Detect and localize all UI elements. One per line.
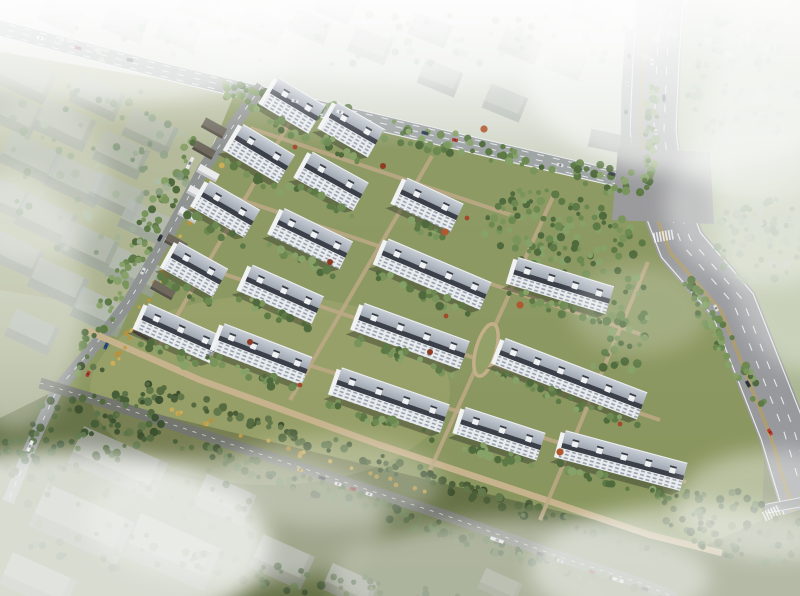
red-accent-tree: [444, 314, 449, 319]
red-accent-tree: [327, 259, 333, 265]
red-accent-tree: [441, 228, 448, 235]
red-accent-tree: [427, 349, 433, 355]
aerial-render-canvas: [0, 0, 800, 596]
red-accent-tree: [618, 422, 623, 427]
red-accent-tree: [516, 301, 523, 308]
red-accent-tree: [465, 216, 470, 221]
aerial-render-stage: [0, 0, 800, 596]
fog-patch: [570, 265, 710, 355]
red-accent-tree: [247, 339, 253, 345]
red-accent-tree: [298, 383, 303, 388]
top-atmosphere-haze: [0, 0, 800, 150]
fog-patch: [220, 437, 440, 527]
red-accent-tree: [556, 448, 563, 455]
red-accent-tree: [380, 163, 386, 169]
